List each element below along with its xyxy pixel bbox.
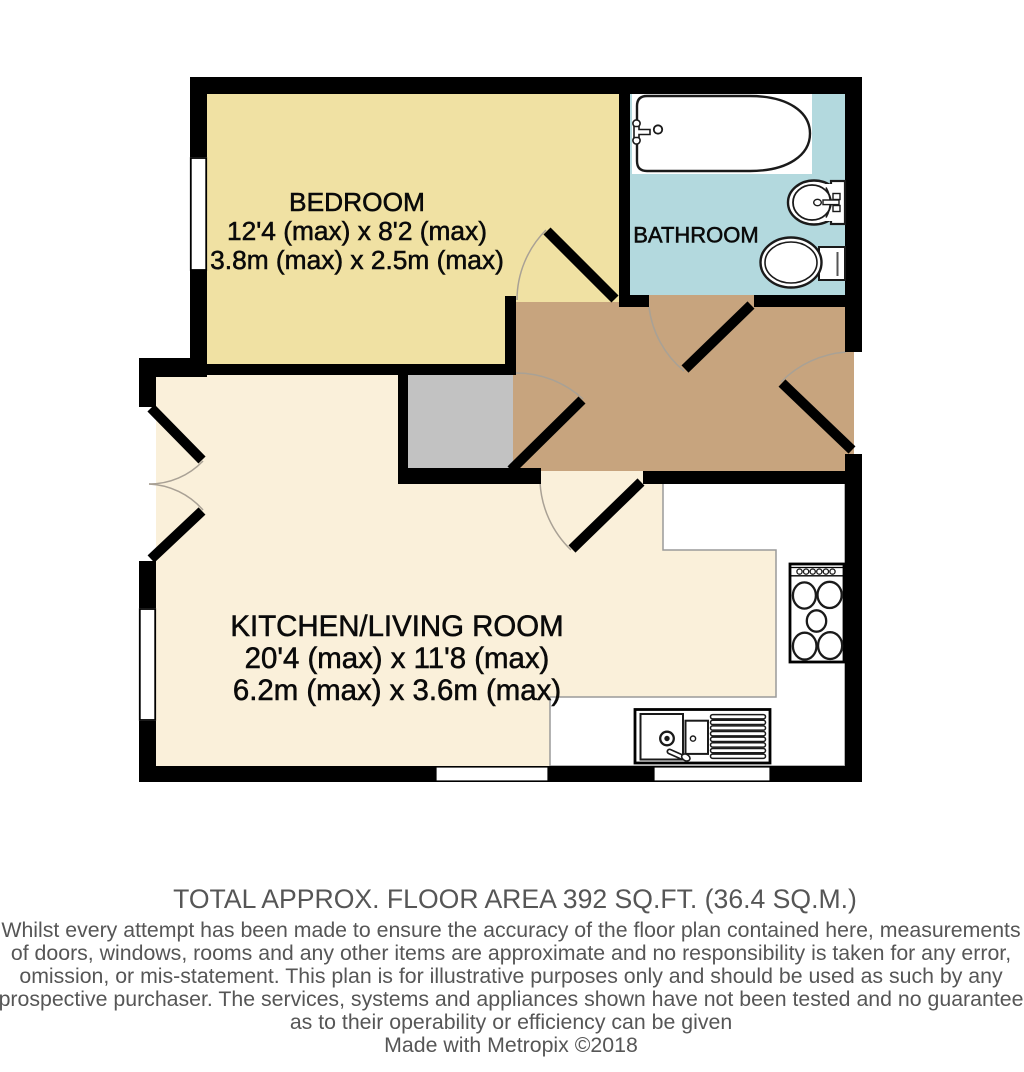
svg-text:Made with Metropix ©2018: Made with Metropix ©2018 [384, 1033, 638, 1057]
svg-text:KITCHEN/LIVING ROOM: KITCHEN/LIVING ROOM [230, 610, 563, 643]
svg-text:of doors, windows, rooms and a: of doors, windows, rooms and any other i… [11, 941, 1011, 965]
svg-text:prospective purchaser. The ser: prospective purchaser. The services, sys… [0, 987, 1023, 1011]
svg-text:3.8m (max) x 2.5m (max): 3.8m (max) x 2.5m (max) [210, 245, 504, 275]
svg-text:6.2m (max) x 3.6m (max): 6.2m (max) x 3.6m (max) [233, 674, 561, 707]
svg-text:BATHROOM: BATHROOM [633, 223, 758, 248]
svg-text:as to their operability or eff: as to their operability or efficiency ca… [290, 1010, 732, 1034]
svg-text:BEDROOM: BEDROOM [289, 187, 425, 217]
svg-text:Whilst every attempt has been: Whilst every attempt has been made to en… [1, 918, 1020, 942]
svg-text:TOTAL APPROX. FLOOR AREA 392 S: TOTAL APPROX. FLOOR AREA 392 SQ.FT. (36.… [173, 884, 857, 914]
svg-text:20'4 (max) x 11'8 (max): 20'4 (max) x 11'8 (max) [245, 642, 550, 675]
svg-text:omission, or mis-statement. Th: omission, or mis-statement. This plan is… [19, 964, 1003, 988]
svg-text:12'4 (max) x 8'2 (max): 12'4 (max) x 8'2 (max) [227, 216, 487, 246]
